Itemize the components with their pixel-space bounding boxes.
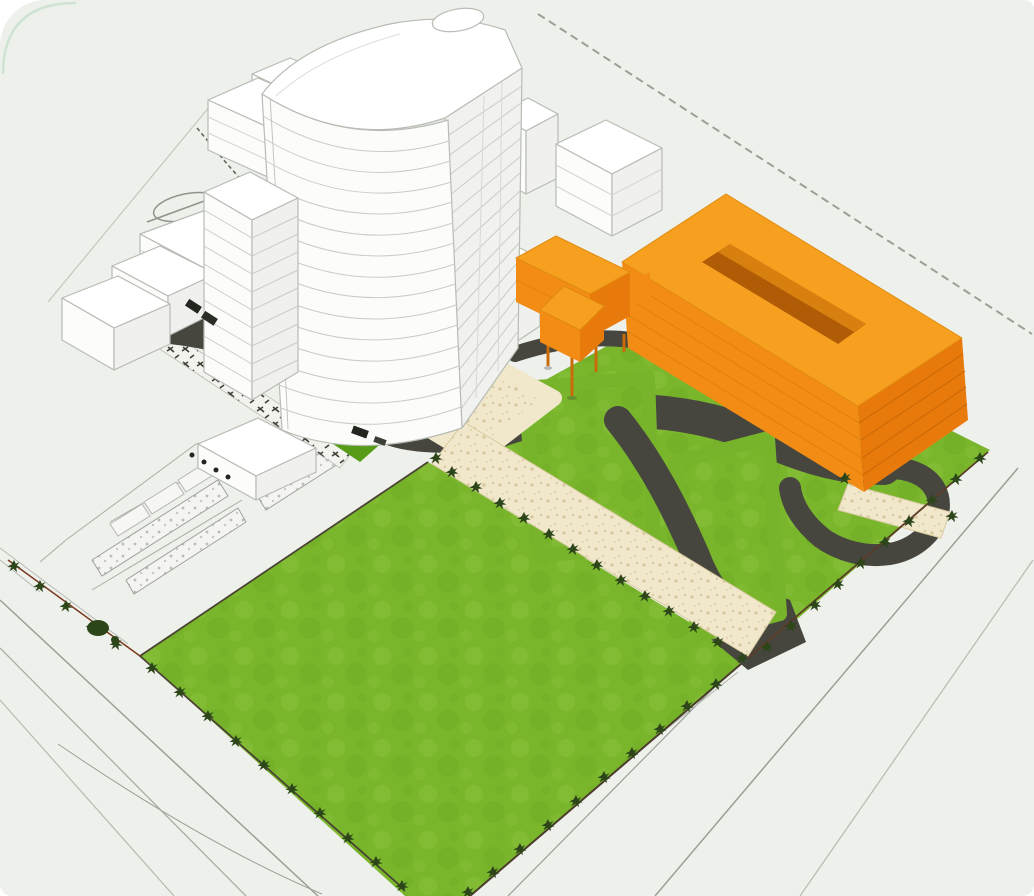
dot-mark [226, 475, 231, 480]
large-tree [87, 620, 109, 636]
site-plan-rendering: Aerial 3D architectural massing renderin… [0, 0, 1034, 896]
tower-wing [204, 172, 298, 400]
dot-mark [190, 453, 195, 458]
dot-mark [202, 460, 207, 465]
dot-mark [214, 468, 219, 473]
large-tree [111, 636, 119, 644]
site-plan-canvas [0, 0, 1034, 896]
stilt-shadow [567, 396, 577, 400]
stilt-shadow [544, 366, 552, 370]
